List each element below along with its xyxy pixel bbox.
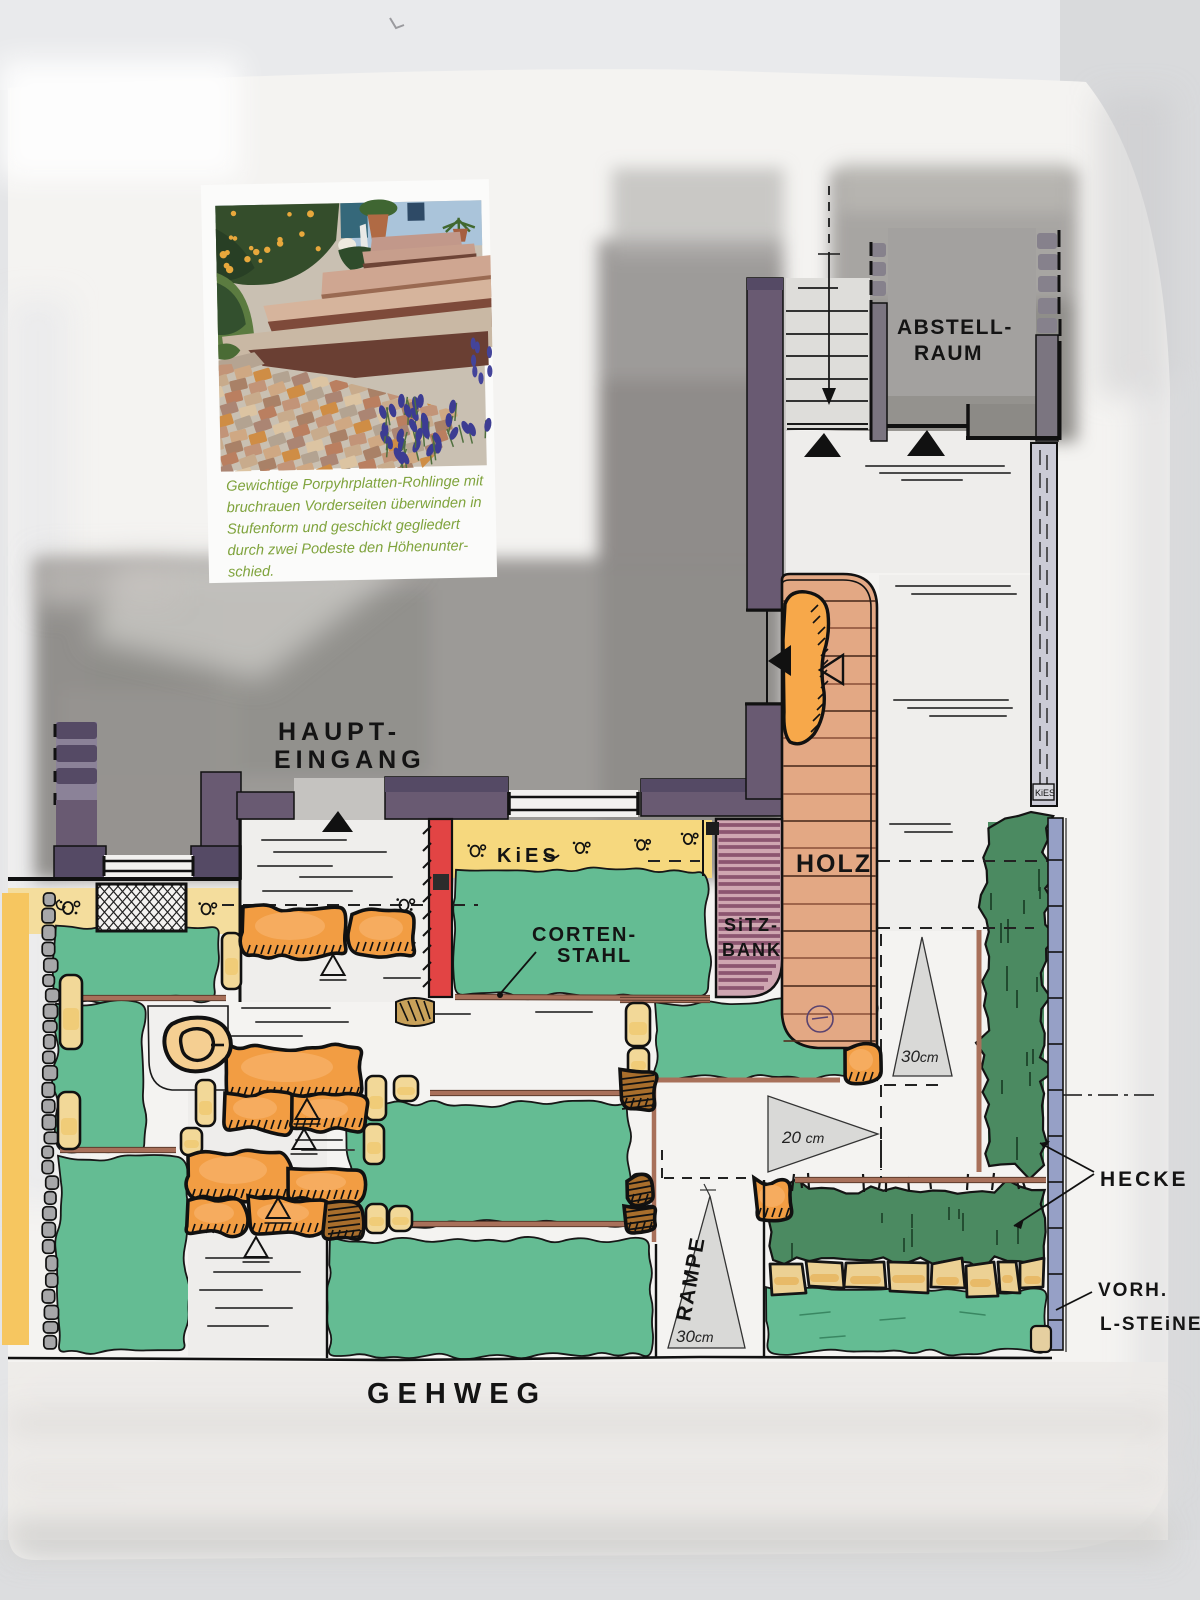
- svg-text:schied.: schied.: [228, 564, 275, 581]
- svg-text:GEHWEG: GEHWEG: [367, 1378, 547, 1410]
- svg-text:BANK: BANK: [722, 940, 782, 960]
- svg-text:30cm: 30cm: [901, 1047, 939, 1066]
- svg-text:30cm: 30cm: [676, 1327, 714, 1346]
- svg-text:20 cm: 20 cm: [781, 1128, 825, 1147]
- svg-text:VORH.: VORH.: [1098, 1280, 1168, 1301]
- svg-text:STAHL: STAHL: [557, 945, 632, 967]
- svg-text:HAUPT-: HAUPT-: [278, 718, 401, 746]
- svg-text:ABSTELL-: ABSTELL-: [897, 316, 1013, 339]
- svg-text:EINGANG: EINGANG: [274, 746, 426, 774]
- svg-text:KiES: KiES: [1035, 788, 1055, 798]
- svg-text:KiES: KiES: [497, 845, 560, 867]
- svg-text:HOLZ: HOLZ: [796, 850, 872, 878]
- svg-text:SiTZ-: SiTZ-: [724, 915, 779, 935]
- svg-text:HECKE: HECKE: [1100, 1168, 1189, 1191]
- svg-text:L-STEiNE: L-STEiNE: [1100, 1314, 1200, 1335]
- svg-text:CORTEN-: CORTEN-: [532, 924, 637, 946]
- svg-text:RAUM: RAUM: [914, 342, 983, 365]
